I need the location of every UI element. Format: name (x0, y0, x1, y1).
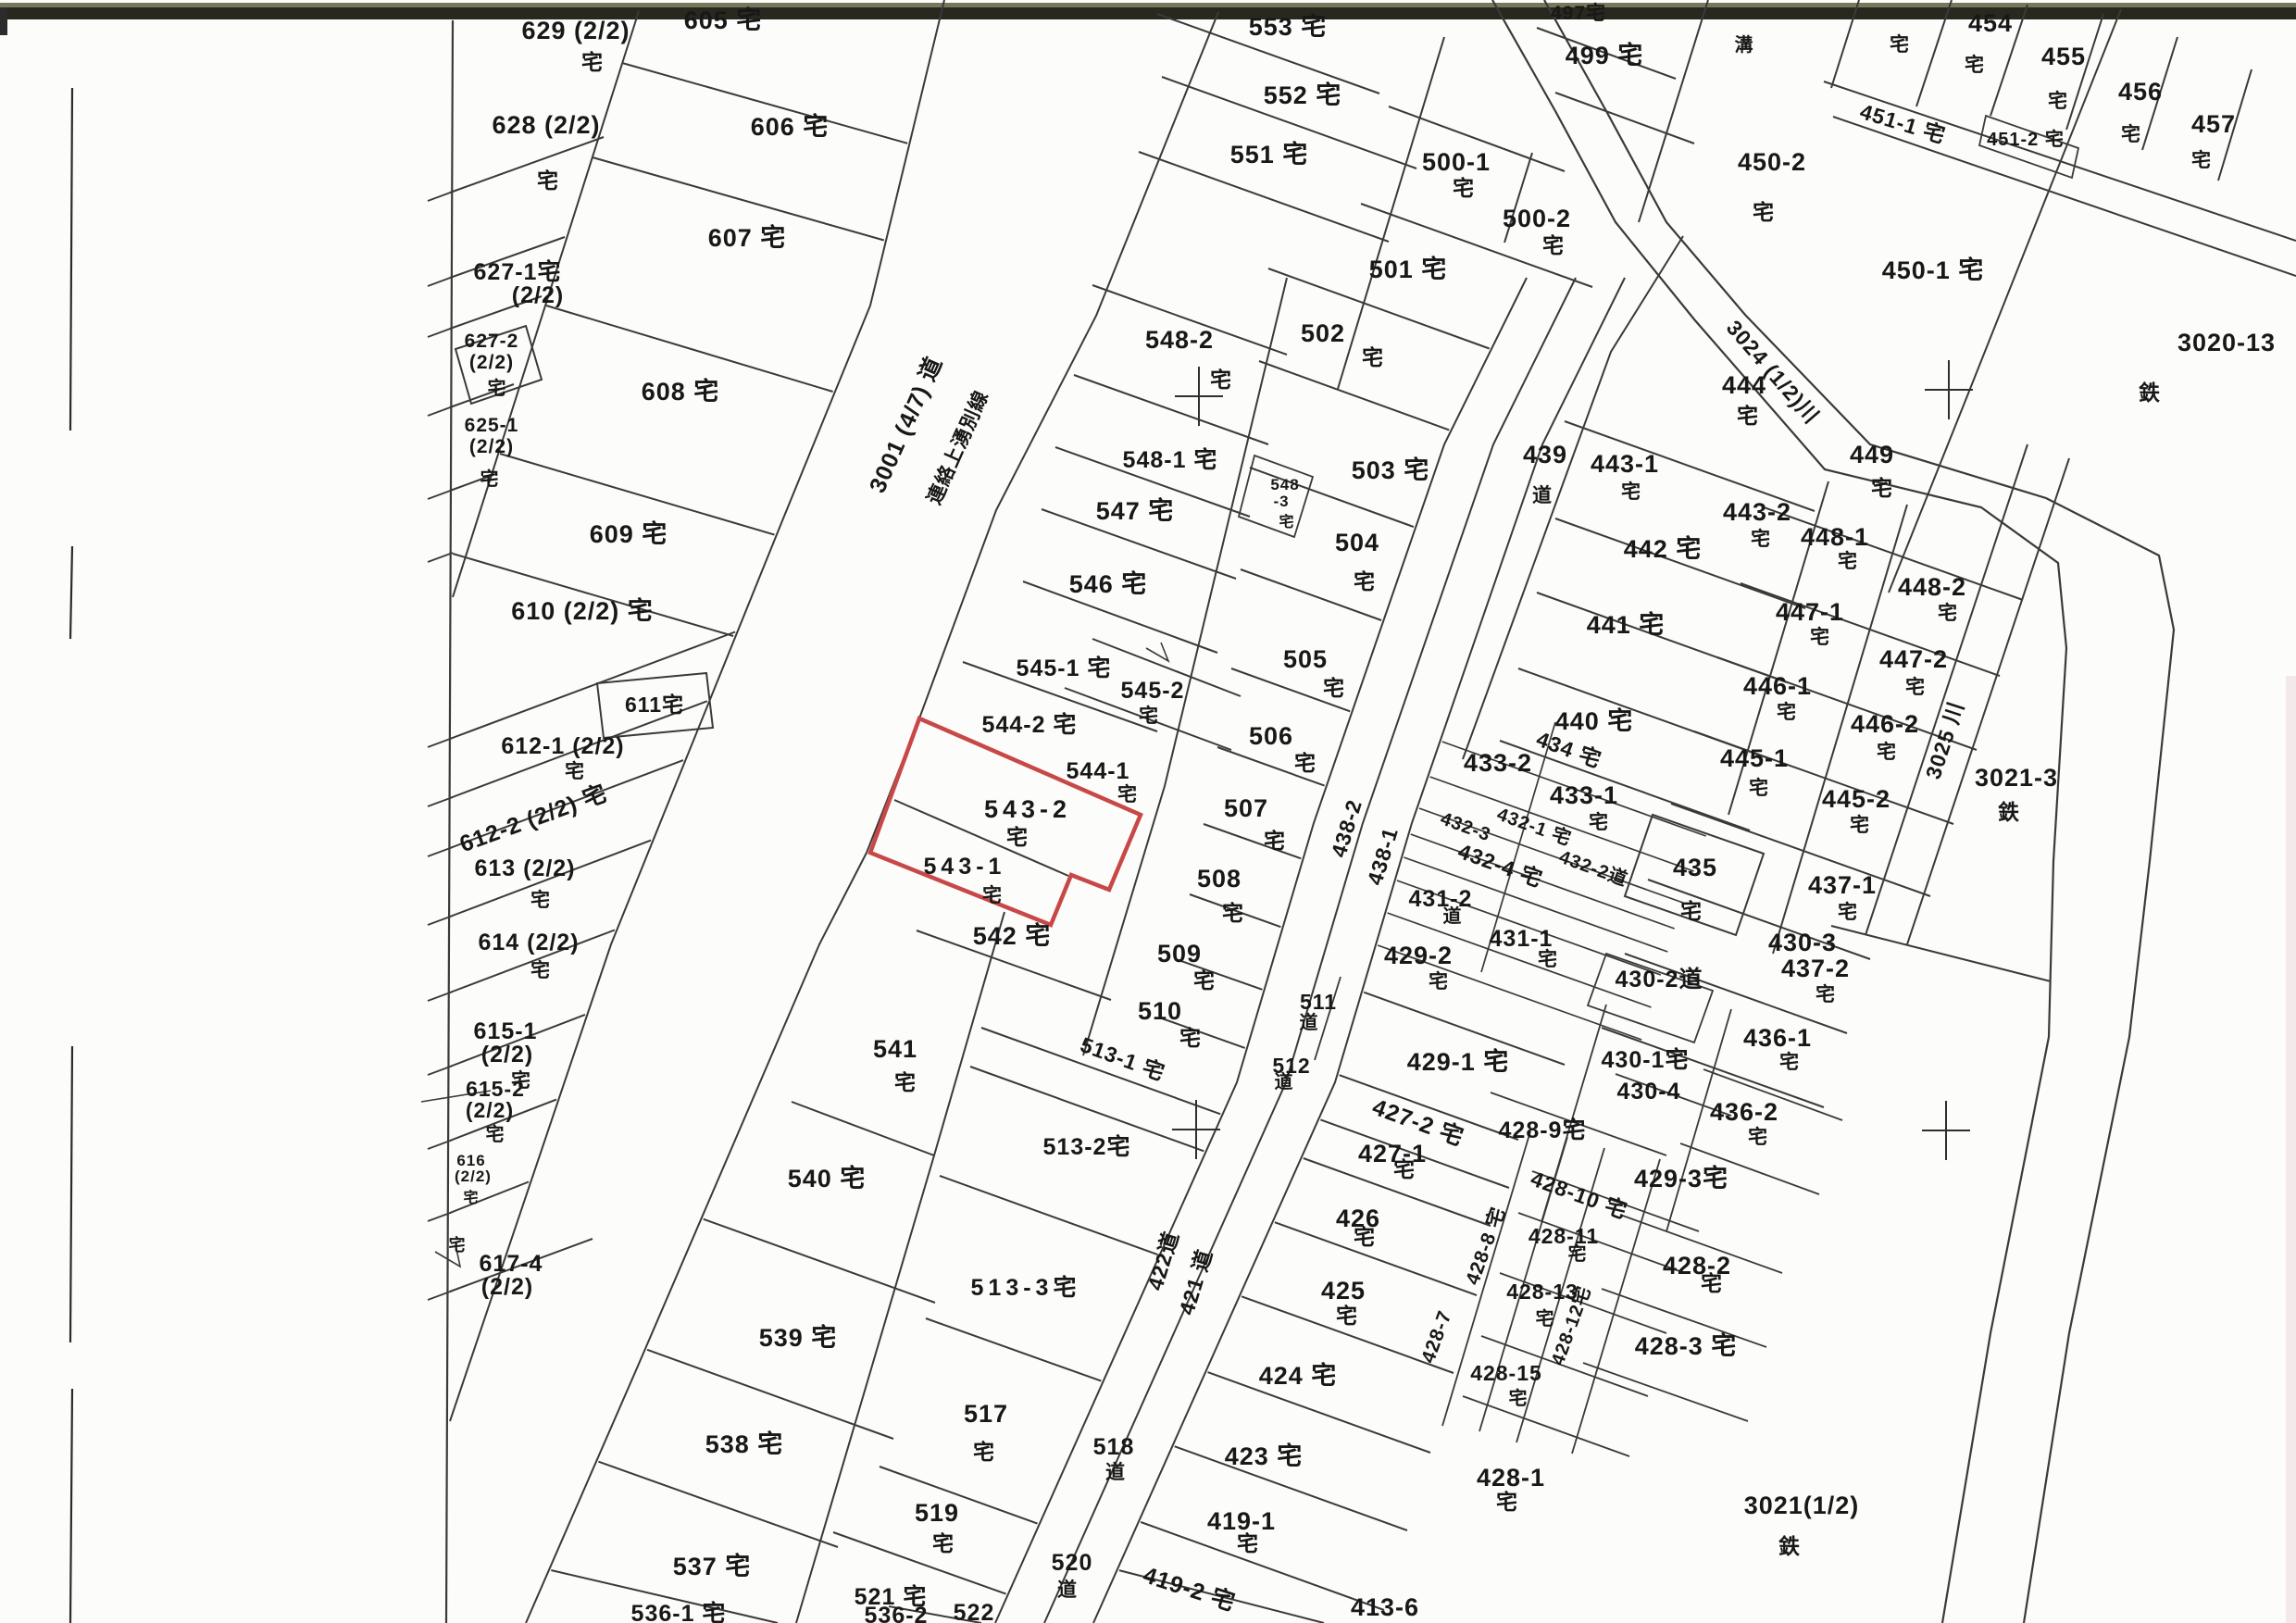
svg-text:宅: 宅 (1621, 481, 1641, 503)
svg-text:430-3: 430-3 (1768, 929, 1837, 956)
svg-text:538 宅: 538 宅 (705, 1429, 784, 1458)
svg-text:519: 519 (915, 1499, 959, 1527)
svg-text:447-1: 447-1 (1776, 598, 1844, 626)
svg-text:413-6: 413-6 (1351, 1593, 1419, 1621)
svg-text:宅: 宅 (486, 1123, 505, 1145)
svg-text:543-2: 543-2 (984, 795, 1071, 823)
svg-text:551 宅: 551 宅 (1230, 140, 1309, 169)
svg-text:宅: 宅 (932, 1531, 955, 1555)
svg-text:(2/2): (2/2) (466, 1098, 514, 1122)
svg-text:553 宅: 553 宅 (1249, 12, 1328, 41)
svg-text:宅: 宅 (537, 169, 559, 193)
svg-text:宅: 宅 (1354, 569, 1376, 593)
svg-text:宅: 宅 (982, 884, 1003, 906)
svg-text:宅: 宅 (1509, 1387, 1529, 1409)
svg-text:宅: 宅 (973, 1440, 995, 1464)
svg-text:宅: 宅 (1748, 1126, 1768, 1148)
svg-text:441 宅: 441 宅 (1587, 610, 1666, 639)
svg-text:3020-13: 3020-13 (2177, 329, 2276, 356)
svg-text:607 宅: 607 宅 (708, 223, 787, 252)
svg-text:宅: 宅 (1810, 626, 1830, 648)
svg-text:宅: 宅 (1850, 814, 1870, 836)
svg-text:548-1 宅: 548-1 宅 (1123, 446, 1218, 473)
svg-text:625-1: 625-1 (465, 415, 519, 436)
svg-text:540 宅: 540 宅 (788, 1164, 867, 1192)
svg-text:615-1: 615-1 (474, 1018, 538, 1044)
svg-text:450-2: 450-2 (1738, 148, 1806, 176)
svg-text:(2/2): (2/2) (481, 1274, 533, 1300)
svg-text:宅: 宅 (1938, 602, 1958, 624)
svg-text:611宅: 611宅 (625, 693, 684, 717)
svg-text:428-3 宅: 428-3 宅 (1635, 1331, 1738, 1360)
svg-text:宅: 宅 (530, 889, 551, 911)
svg-text:497宅: 497宅 (1551, 2, 1606, 24)
svg-text:629 (2/2): 629 (2/2) (521, 17, 630, 44)
svg-text:宅: 宅 (1838, 550, 1858, 572)
svg-text:511: 511 (1300, 990, 1337, 1014)
svg-text:606 宅: 606 宅 (751, 112, 830, 141)
svg-text:(2/2): (2/2) (481, 1042, 533, 1067)
svg-text:446-1: 446-1 (1743, 672, 1812, 700)
svg-text:440 宅: 440 宅 (1555, 706, 1634, 735)
svg-text:宅: 宅 (1779, 1051, 1800, 1073)
svg-text:道: 道 (1532, 484, 1553, 506)
svg-text:宅: 宅 (894, 1070, 917, 1094)
svg-text:614 (2/2): 614 (2/2) (478, 930, 579, 955)
svg-text:500-2: 500-2 (1503, 205, 1571, 232)
svg-text:539 宅: 539 宅 (759, 1323, 838, 1352)
svg-text:宅: 宅 (2191, 149, 2212, 171)
svg-text:429-1 宅: 429-1 宅 (1407, 1047, 1510, 1076)
svg-text:430-2道: 430-2道 (1616, 966, 1703, 993)
svg-text:445-1: 445-1 (1720, 744, 1789, 772)
svg-text:548: 548 (1270, 476, 1299, 493)
svg-text:430-4: 430-4 (1617, 1079, 1681, 1105)
svg-text:509: 509 (1157, 940, 1202, 968)
svg-text:宅: 宅 (463, 1189, 479, 1206)
svg-text:442 宅: 442 宅 (1624, 534, 1703, 563)
svg-text:宅: 宅 (1294, 751, 1316, 775)
svg-text:450-1 宅: 450-1 宅 (1882, 256, 1985, 284)
svg-text:宅: 宅 (1905, 676, 1926, 698)
svg-text:617-4: 617-4 (480, 1251, 543, 1277)
svg-text:429-3宅: 429-3宅 (1634, 1164, 1728, 1192)
svg-text:546 宅: 546 宅 (1069, 569, 1148, 598)
svg-text:605 宅: 605 宅 (684, 6, 763, 34)
svg-text:445-2: 445-2 (1822, 785, 1890, 813)
svg-text:508: 508 (1197, 865, 1242, 893)
svg-text:507: 507 (1224, 794, 1268, 822)
svg-text:501 宅: 501 宅 (1369, 255, 1448, 283)
svg-text:439: 439 (1523, 441, 1567, 468)
svg-text:溝: 溝 (1735, 33, 1754, 56)
svg-text:宅: 宅 (1777, 701, 1797, 723)
svg-text:宅: 宅 (1222, 901, 1244, 925)
svg-text:455: 455 (2041, 43, 2086, 70)
svg-text:447-2: 447-2 (1879, 645, 1948, 673)
svg-text:610 (2/2) 宅: 610 (2/2) 宅 (511, 596, 654, 625)
svg-text:548-2: 548-2 (1145, 326, 1214, 354)
svg-text:457: 457 (2191, 110, 2236, 138)
svg-text:430-1宅: 430-1宅 (1602, 1046, 1690, 1073)
svg-text:505: 505 (1283, 645, 1328, 673)
svg-text:544-2 宅: 544-2 宅 (982, 711, 1078, 738)
svg-text:451-2 宅: 451-2 宅 (1987, 128, 2065, 150)
svg-text:428-11: 428-11 (1529, 1224, 1599, 1248)
svg-text:428-13: 428-13 (1506, 1280, 1578, 1304)
svg-text:612-1 (2/2): 612-1 (2/2) (501, 733, 624, 759)
svg-text:鉄: 鉄 (1778, 1534, 1801, 1558)
svg-text:宅: 宅 (565, 760, 585, 782)
svg-text:542 宅: 542 宅 (973, 921, 1052, 950)
svg-text:499 宅: 499 宅 (1566, 41, 1644, 69)
svg-text:道: 道 (1275, 1070, 1294, 1092)
svg-text:456: 456 (2118, 78, 2163, 106)
svg-text:433-1: 433-1 (1550, 781, 1618, 809)
svg-text:宅: 宅 (1264, 829, 1286, 853)
svg-text:627-2: 627-2 (465, 331, 519, 352)
svg-text:宅: 宅 (1737, 404, 1759, 428)
svg-text:428-9宅: 428-9宅 (1499, 1117, 1587, 1143)
svg-text:宅: 宅 (1536, 1307, 1555, 1330)
svg-text:(2/2): (2/2) (512, 282, 564, 308)
svg-text:536-2: 536-2 (865, 1603, 929, 1623)
svg-text:437-1: 437-1 (1808, 871, 1877, 899)
svg-text:道: 道 (1105, 1461, 1126, 1483)
svg-text:504: 504 (1335, 529, 1379, 556)
svg-text:433-2: 433-2 (1464, 749, 1532, 777)
svg-text:宅: 宅 (2048, 90, 2068, 112)
svg-text:道: 道 (1443, 905, 1463, 927)
svg-text:宅: 宅 (1139, 705, 1159, 727)
svg-text:宅: 宅 (530, 959, 551, 981)
svg-text:宅: 宅 (1538, 948, 1558, 970)
svg-text:520: 520 (1052, 1550, 1093, 1576)
svg-text:435: 435 (1673, 854, 1717, 881)
svg-text:423 宅: 423 宅 (1225, 1442, 1304, 1470)
svg-text:(2/2): (2/2) (455, 1167, 492, 1185)
svg-text:(2/2): (2/2) (469, 352, 514, 373)
svg-text:543-1: 543-1 (924, 854, 1006, 880)
svg-text:3021(1/2): 3021(1/2) (1744, 1492, 1860, 1519)
svg-text:宅: 宅 (1362, 345, 1384, 369)
svg-text:424 宅: 424 宅 (1259, 1361, 1338, 1390)
svg-text:宅: 宅 (1336, 1304, 1358, 1328)
svg-text:宅: 宅 (1279, 513, 1294, 531)
svg-text:鉄: 鉄 (1998, 800, 2020, 824)
svg-text:443-1: 443-1 (1591, 450, 1659, 478)
svg-text:宅: 宅 (1453, 176, 1475, 200)
svg-text:宅: 宅 (1753, 200, 1775, 224)
svg-text:627-1宅: 627-1宅 (474, 258, 562, 285)
svg-text:宅: 宅 (1193, 968, 1216, 993)
svg-text:513-2宅: 513-2宅 (1043, 1133, 1131, 1160)
svg-text:448-2: 448-2 (1898, 573, 1966, 601)
svg-text:宅: 宅 (480, 468, 500, 490)
svg-text:宅: 宅 (1890, 33, 1910, 56)
svg-text:446-2: 446-2 (1851, 710, 1919, 738)
svg-text:宅: 宅 (2121, 123, 2141, 145)
svg-text:宅: 宅 (1210, 368, 1232, 392)
svg-text:506: 506 (1249, 722, 1293, 750)
svg-text:431-1: 431-1 (1490, 926, 1554, 952)
svg-text:宅: 宅 (1237, 1531, 1259, 1555)
svg-text:428-1: 428-1 (1477, 1464, 1545, 1492)
svg-text:443-2: 443-2 (1723, 498, 1791, 526)
svg-text:431-2: 431-2 (1409, 886, 1473, 912)
svg-text:444: 444 (1722, 371, 1766, 399)
svg-text:427-1: 427-1 (1358, 1140, 1427, 1167)
svg-text:449: 449 (1850, 441, 1894, 468)
svg-text:436-2: 436-2 (1710, 1098, 1778, 1126)
svg-text:547 宅: 547 宅 (1096, 496, 1175, 525)
svg-text:宅: 宅 (1496, 1490, 1518, 1514)
svg-text:428-15: 428-15 (1470, 1361, 1542, 1385)
svg-text:609 宅: 609 宅 (590, 519, 668, 548)
svg-text:道: 道 (1057, 1579, 1078, 1601)
svg-text:552 宅: 552 宅 (1264, 81, 1342, 109)
svg-text:545-1 宅: 545-1 宅 (1017, 655, 1112, 681)
svg-text:宅: 宅 (1751, 528, 1771, 550)
svg-text:宅: 宅 (449, 1235, 467, 1255)
svg-text:宅: 宅 (1749, 777, 1769, 799)
svg-text:宅: 宅 (581, 50, 604, 74)
svg-text:3021-3: 3021-3 (1975, 764, 2058, 792)
svg-text:448-1: 448-1 (1801, 523, 1869, 551)
svg-text:宅: 宅 (1117, 783, 1138, 805)
svg-text:鉄: 鉄 (2139, 381, 2161, 405)
svg-text:宅: 宅 (1589, 811, 1609, 833)
svg-text:宅: 宅 (488, 377, 507, 399)
svg-text:522: 522 (954, 1600, 995, 1623)
svg-text:513-3宅: 513-3宅 (971, 1274, 1081, 1301)
svg-text:503 宅: 503 宅 (1352, 456, 1430, 484)
svg-text:宅: 宅 (1323, 676, 1345, 700)
svg-text:510: 510 (1138, 997, 1182, 1025)
svg-text:宅: 宅 (1838, 901, 1858, 923)
svg-text:544-1: 544-1 (1067, 758, 1130, 784)
svg-text:宅: 宅 (1179, 1026, 1202, 1050)
svg-text:道: 道 (1300, 1011, 1319, 1033)
svg-text:517: 517 (964, 1400, 1008, 1428)
svg-text:608 宅: 608 宅 (642, 377, 720, 406)
svg-text:500-1: 500-1 (1422, 148, 1491, 176)
svg-text:宅: 宅 (1006, 825, 1029, 849)
svg-text:宅: 宅 (1542, 233, 1565, 257)
svg-text:437-2: 437-2 (1781, 955, 1850, 982)
svg-text:536-1 宅: 536-1 宅 (631, 1600, 727, 1623)
svg-text:454: 454 (1968, 9, 2013, 37)
svg-text:518: 518 (1093, 1434, 1135, 1460)
svg-text:429-2: 429-2 (1384, 942, 1453, 969)
svg-text:宅: 宅 (1354, 1225, 1376, 1249)
svg-text:628 (2/2): 628 (2/2) (492, 111, 600, 139)
svg-text:502: 502 (1301, 319, 1345, 347)
svg-text:(2/2): (2/2) (469, 436, 514, 457)
svg-text:425: 425 (1321, 1277, 1366, 1305)
svg-text:436-1: 436-1 (1743, 1024, 1812, 1052)
svg-text:宅: 宅 (1701, 1271, 1723, 1295)
svg-text:宅: 宅 (1568, 1242, 1588, 1265)
svg-text:宅: 宅 (1680, 899, 1703, 923)
svg-text:-3: -3 (1273, 493, 1289, 510)
svg-text:宅: 宅 (1393, 1157, 1416, 1181)
svg-text:宅: 宅 (1429, 970, 1449, 993)
svg-text:宅: 宅 (1816, 983, 1836, 1005)
svg-text:613 (2/2): 613 (2/2) (474, 855, 575, 881)
svg-text:541: 541 (873, 1035, 917, 1063)
svg-text:537 宅: 537 宅 (673, 1552, 752, 1580)
svg-text:宅: 宅 (1877, 741, 1897, 763)
svg-text:545-2: 545-2 (1121, 678, 1185, 704)
svg-text:宅: 宅 (1965, 54, 1985, 76)
svg-text:宅: 宅 (1871, 476, 1893, 500)
